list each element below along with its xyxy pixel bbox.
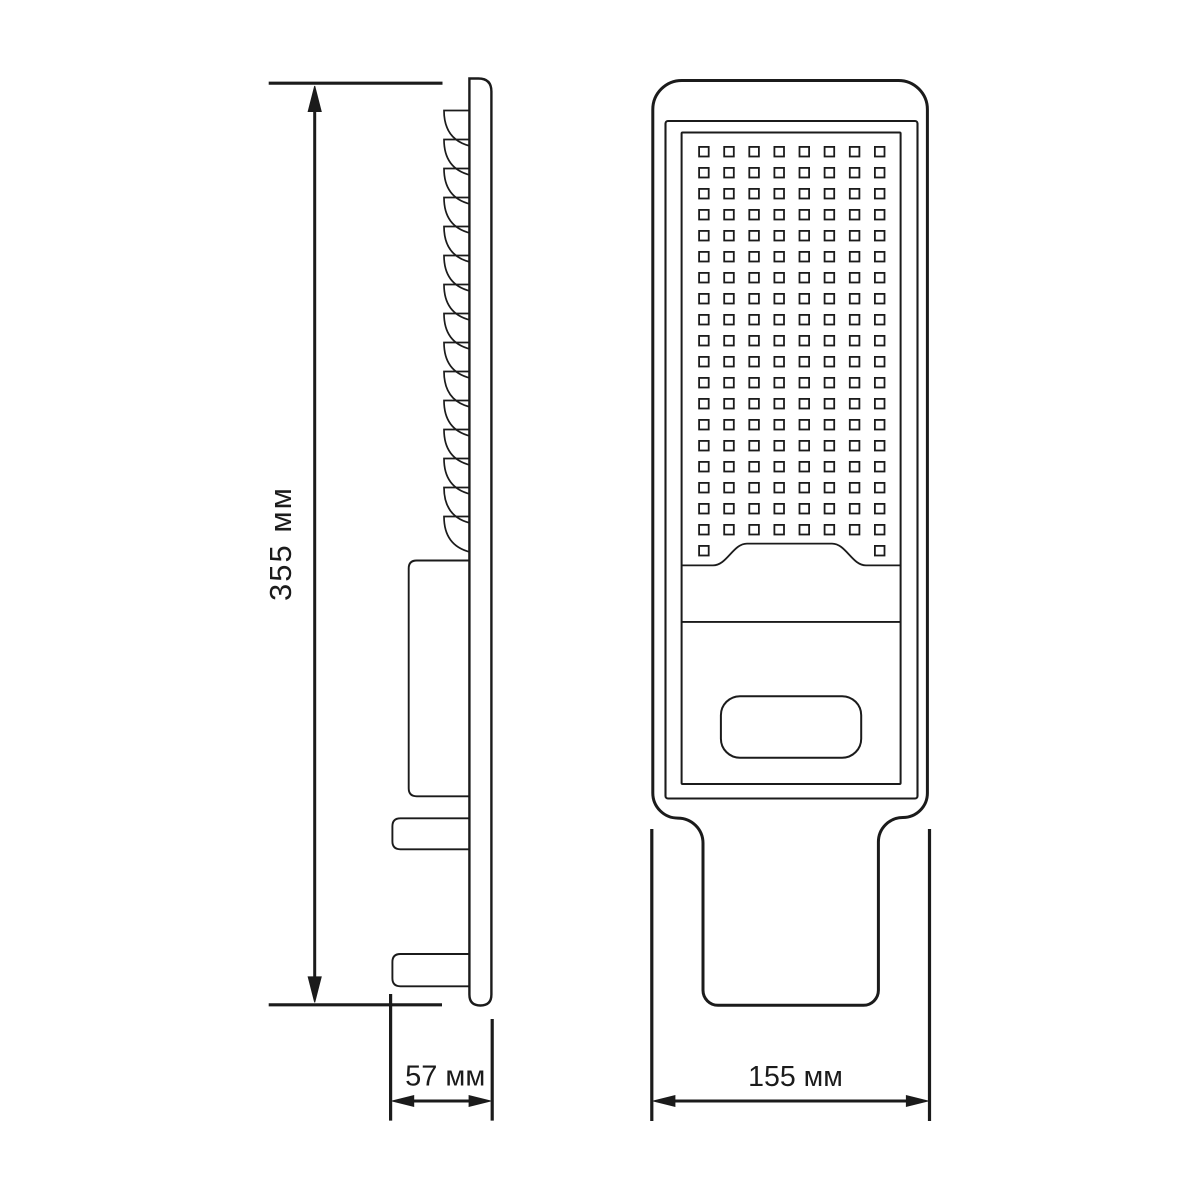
svg-text:57 мм: 57 мм — [405, 1061, 485, 1093]
svg-text:155 мм: 155 мм — [748, 1061, 843, 1093]
svg-text:355 мм: 355 мм — [263, 486, 298, 601]
